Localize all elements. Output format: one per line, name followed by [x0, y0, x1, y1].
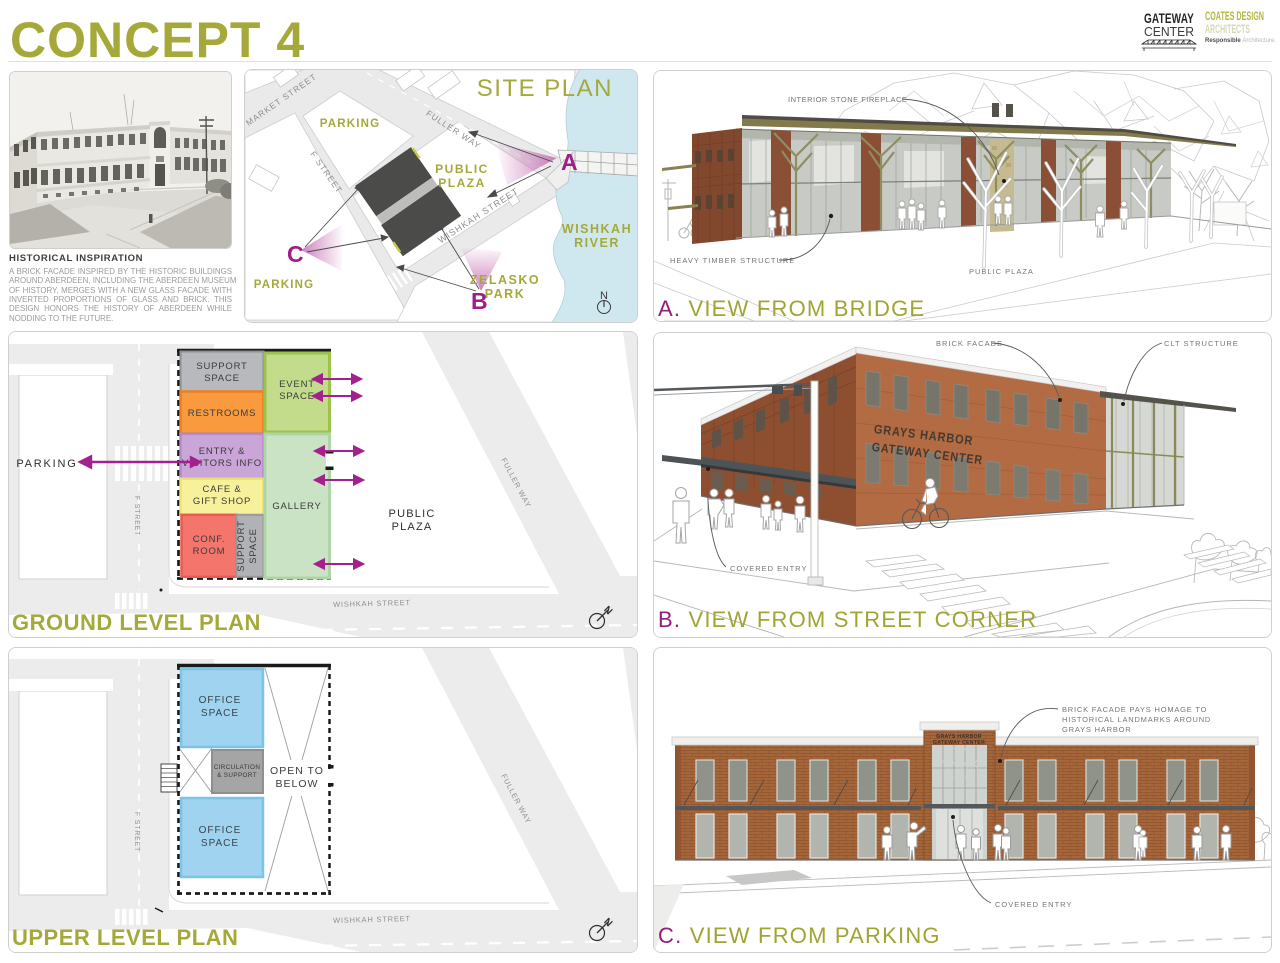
svg-text:GRAYS HARBOR: GRAYS HARBOR — [1062, 725, 1131, 734]
svg-text:SUPPORT: SUPPORT — [196, 361, 247, 372]
svg-text:A: A — [561, 149, 578, 175]
svg-text:COVERED ENTRY: COVERED ENTRY — [995, 900, 1072, 909]
svg-text:RIVER: RIVER — [574, 236, 620, 250]
svg-text:RESTROOMS: RESTROOMS — [188, 408, 256, 419]
svg-text:SPACE: SPACE — [201, 708, 239, 719]
svg-text:HISTORICAL LANDMARKS AROUND: HISTORICAL LANDMARKS AROUND — [1062, 715, 1211, 724]
svg-text:SPACE: SPACE — [279, 391, 315, 402]
svg-text:OFFICE: OFFICE — [199, 695, 242, 706]
svg-text:INTERIOR STONE FIREPLACE: INTERIOR STONE FIREPLACE — [788, 95, 907, 104]
svg-text:OFFICE: OFFICE — [199, 825, 242, 836]
svg-text:Responsible Architecture.: Responsible Architecture. — [1205, 38, 1276, 44]
svg-text:PARKING: PARKING — [254, 279, 315, 291]
svg-text:PARKING: PARKING — [16, 458, 77, 470]
svg-text:SPACE: SPACE — [201, 838, 239, 849]
svg-text:F STREET: F STREET — [133, 812, 140, 852]
svg-text:PARK: PARK — [485, 287, 526, 301]
svg-text:ROOM: ROOM — [193, 546, 226, 557]
svg-text:PUBLIC PLAZA: PUBLIC PLAZA — [969, 267, 1034, 276]
svg-text:CENTER: CENTER — [1144, 24, 1194, 39]
svg-text:SUPPORT: SUPPORT — [236, 520, 247, 571]
svg-text:GIFT SHOP: GIFT SHOP — [193, 496, 251, 507]
svg-text:CLT STRUCTURE: CLT STRUCTURE — [1164, 339, 1239, 348]
svg-text:ARCHITECTS: ARCHITECTS — [1205, 22, 1250, 36]
svg-text:EVENT: EVENT — [279, 379, 315, 390]
svg-text:SPACE: SPACE — [248, 528, 259, 564]
svg-text:C: C — [287, 241, 304, 267]
svg-text:CIRCULATION: CIRCULATION — [214, 764, 261, 771]
svg-text:PUBLIC: PUBLIC — [389, 508, 436, 520]
svg-text:PARKING: PARKING — [320, 118, 381, 130]
svg-text:GALLERY: GALLERY — [272, 501, 321, 512]
svg-text:COVERED ENTRY: COVERED ENTRY — [730, 564, 807, 573]
svg-text:PUBLIC: PUBLIC — [435, 162, 489, 176]
svg-text:PLAZA: PLAZA — [438, 176, 486, 190]
svg-text:ZELASKO: ZELASKO — [470, 273, 540, 287]
svg-text:BRICK FACADE PAYS HOMAGE TO: BRICK FACADE PAYS HOMAGE TO — [1062, 705, 1207, 714]
svg-text:B: B — [471, 288, 488, 314]
svg-text:CAFE &: CAFE & — [202, 484, 241, 495]
svg-text:SPACE: SPACE — [204, 373, 240, 384]
svg-text:COATES DESIGN: COATES DESIGN — [1205, 9, 1264, 23]
svg-text:CONF.: CONF. — [193, 534, 226, 545]
svg-text:F STREET: F STREET — [133, 496, 140, 536]
svg-text:PLAZA: PLAZA — [392, 521, 433, 533]
svg-text:& SUPPORT: & SUPPORT — [217, 772, 257, 779]
svg-text:OPEN TO: OPEN TO — [270, 765, 324, 777]
svg-text:WISHKAH: WISHKAH — [562, 222, 632, 236]
svg-text:HEAVY TIMBER STRUCTURE: HEAVY TIMBER STRUCTURE — [670, 256, 795, 265]
svg-text:BELOW: BELOW — [276, 778, 319, 790]
svg-text:ENTRY &: ENTRY & — [199, 446, 245, 457]
svg-text:SITE PLAN: SITE PLAN — [477, 75, 613, 102]
